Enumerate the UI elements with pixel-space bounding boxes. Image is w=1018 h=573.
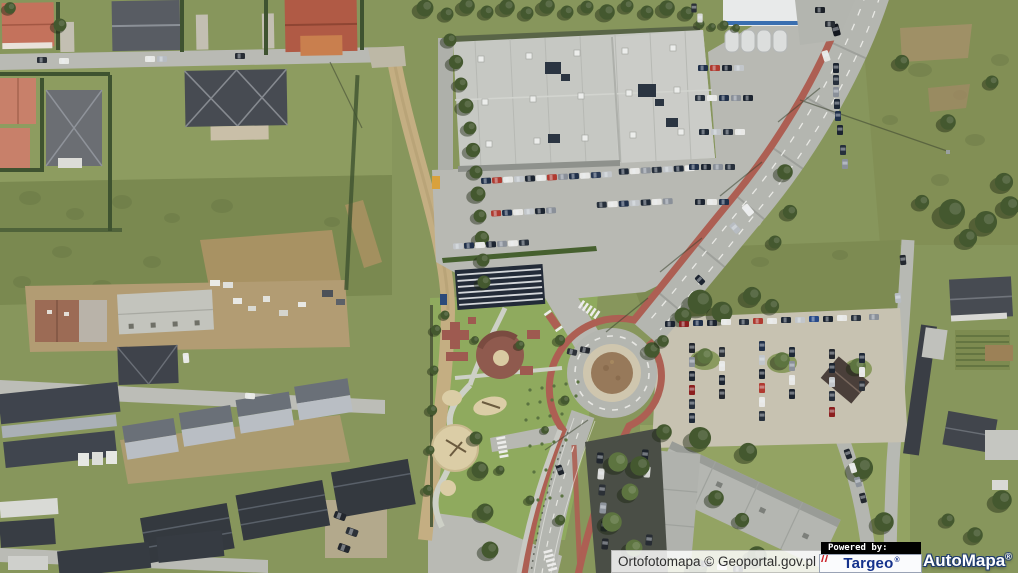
- map-viewport: Ortofotomapa © Geoportal.gov.pl Powered …: [0, 0, 1018, 573]
- roundabout: [567, 328, 657, 418]
- map-canvas[interactable]: [0, 0, 1018, 573]
- dumpster: [440, 294, 447, 305]
- solar-canopy: [455, 264, 546, 310]
- automapa-logo[interactable]: AutoMapa®: [923, 549, 1012, 573]
- powered-by-bar: Powered by:: [821, 542, 921, 554]
- targeo-logo-text: Targeo: [843, 556, 893, 571]
- utility-pole: [946, 150, 950, 154]
- automapa-logo-text: AutoMapa: [923, 551, 1005, 570]
- targeo-logo[interactable]: Targeo ®: [819, 554, 922, 573]
- yellow-container: [432, 176, 440, 189]
- targeo-registered-mark: ®: [894, 555, 899, 564]
- map-attribution: Ortofotomapa © Geoportal.gov.pl: [611, 550, 823, 573]
- automapa-registered-mark: ®: [1005, 551, 1012, 561]
